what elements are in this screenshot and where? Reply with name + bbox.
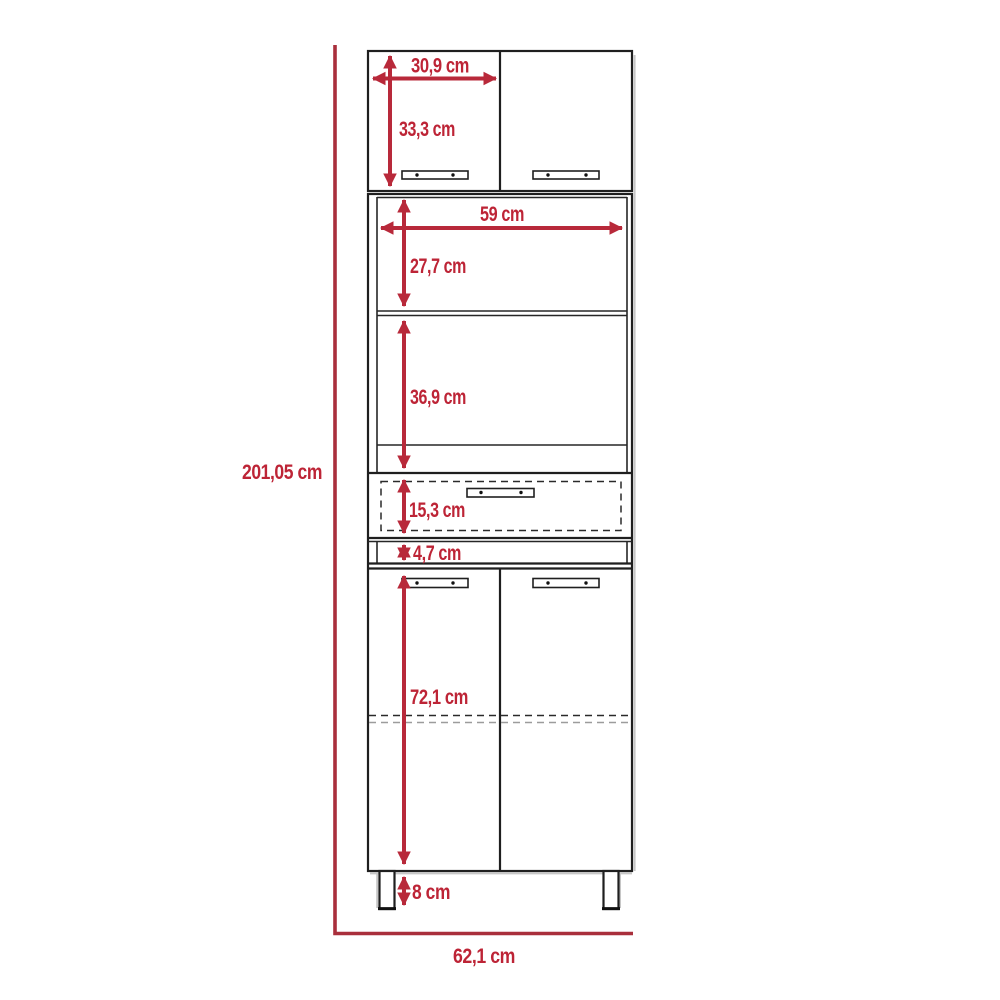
right-leg	[604, 871, 619, 909]
upper-left-door-handle	[402, 171, 468, 179]
bottom-left-door-handle	[402, 579, 468, 588]
drawer-handle	[467, 489, 534, 498]
overall-width-label: 62,1 cm	[453, 945, 515, 968]
dim-drawer-height: 15,3 cm	[404, 480, 465, 533]
dim-rail-height: 4,7 cm	[404, 542, 461, 565]
dim-leg-height: 8 cm	[404, 877, 450, 905]
svg-text:33,3 cm: 33,3 cm	[399, 118, 455, 141]
rail-strip	[368, 541, 632, 564]
dim-bottom-door-height: 72,1 cm	[404, 576, 468, 864]
svg-text:30,9 cm: 30,9 cm	[411, 55, 469, 78]
dim-lower-opening-height: 36,9 cm	[404, 321, 466, 468]
dim-inner-width: 59 cm	[381, 203, 622, 228]
svg-text:36,9 cm: 36,9 cm	[410, 386, 466, 409]
bottom-doors	[368, 569, 632, 872]
base-unit	[368, 194, 632, 871]
svg-text:4,7 cm: 4,7 cm	[413, 542, 461, 565]
bottom-right-door-handle	[533, 579, 599, 588]
cabinet-dimension-diagram: 201,05 cm 62,1 cm 30,9 cm 33,3 cm 59 cm …	[0, 0, 1000, 1000]
svg-text:27,7 cm: 27,7 cm	[410, 255, 466, 278]
diagram-canvas: 201,05 cm 62,1 cm 30,9 cm 33,3 cm 59 cm …	[0, 0, 1000, 1000]
svg-text:59 cm: 59 cm	[480, 203, 524, 226]
upper-right-door-handle	[533, 171, 599, 179]
dimensions: 201,05 cm 62,1 cm 30,9 cm 33,3 cm 59 cm …	[242, 45, 633, 968]
dim-upper-opening-height: 27,7 cm	[404, 200, 466, 306]
left-leg	[380, 871, 395, 909]
svg-text:8 cm: 8 cm	[412, 881, 450, 904]
overall-height-label: 201,05 cm	[242, 461, 322, 484]
svg-text:15,3 cm: 15,3 cm	[409, 499, 465, 522]
open-hutch	[377, 197, 627, 473]
drawer	[368, 473, 632, 538]
svg-text:72,1 cm: 72,1 cm	[410, 686, 468, 709]
